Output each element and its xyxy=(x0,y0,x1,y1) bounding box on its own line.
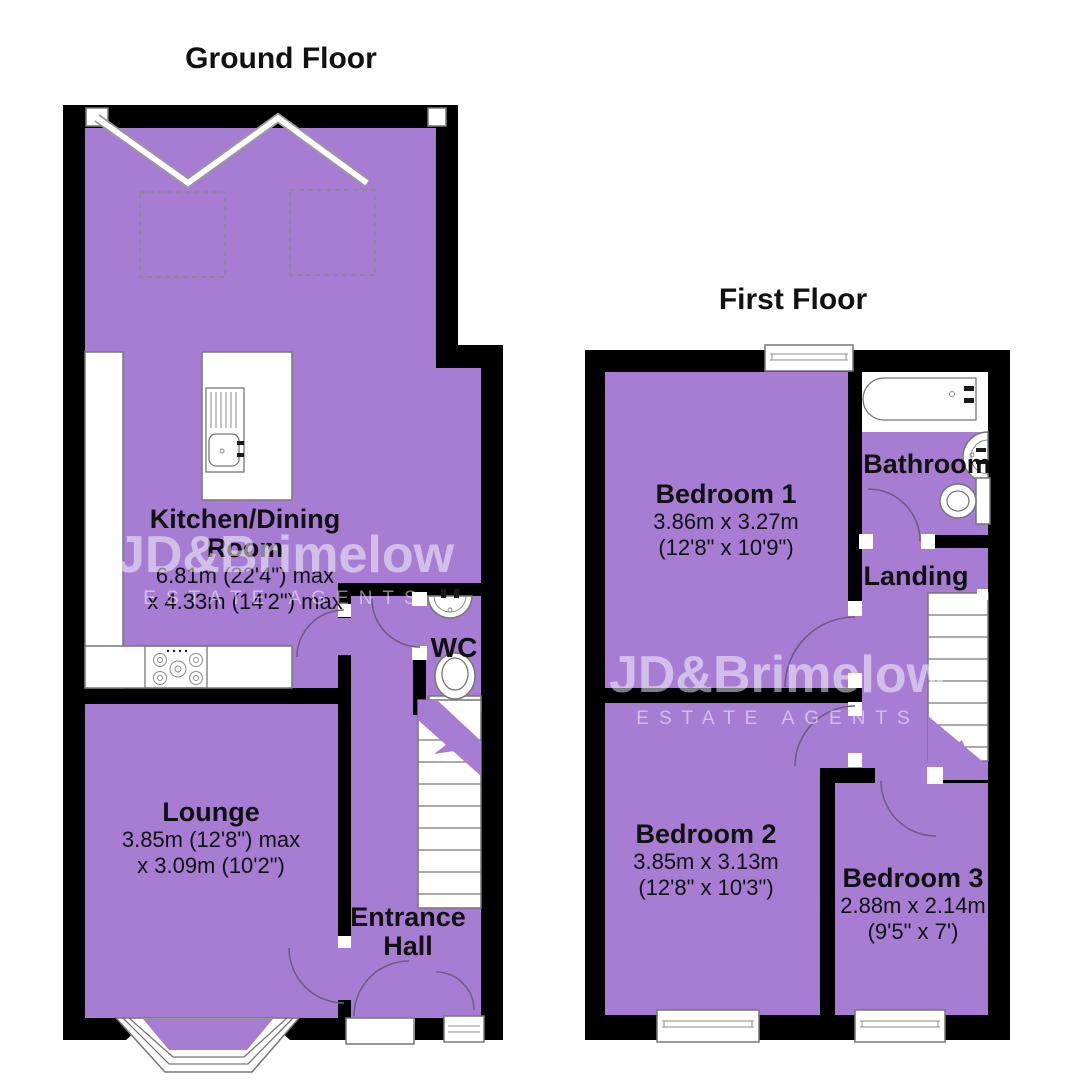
bedroom3-door-post xyxy=(927,767,943,784)
bedroom1-door-post-top xyxy=(848,601,862,616)
bedroom3-name: Bedroom 3 xyxy=(840,864,986,893)
bedroom1-dim-1: 3.86m x 3.27m xyxy=(653,509,799,535)
bedroom3-window xyxy=(855,1010,945,1042)
first-floor-title: First Floor xyxy=(719,283,867,317)
bedroom3-dim-2: (9'5" x 7') xyxy=(840,919,986,945)
ground-floor-title: Ground Floor xyxy=(185,42,377,76)
bedroom2-door-post-bottom xyxy=(848,753,862,767)
kitchen-name: Kitchen/Dining Room xyxy=(120,505,370,563)
bedroom3-dim-1: 2.88m x 2.14m xyxy=(840,893,986,919)
lounge-dim-1: 3.85m (12'8") max xyxy=(122,827,300,853)
lounge-name: Lounge xyxy=(122,798,300,827)
bedroom1-window xyxy=(765,345,853,371)
lounge-dim-2: x 3.09m (10'2") xyxy=(122,853,300,879)
kitchen-counter-left xyxy=(85,352,123,688)
porch-step xyxy=(444,1016,484,1042)
room-label-bedroom3: Bedroom 3 2.88m x 2.14m (9'5" x 7') xyxy=(840,864,986,945)
room-label-kitchen: Kitchen/Dining Room 6.81m (22'4") max x … xyxy=(120,505,370,615)
bedroom1-dim-2: (12'8" x 10'9") xyxy=(653,535,799,561)
wc-door-post-bottom xyxy=(412,646,427,660)
room-label-lounge: Lounge 3.85m (12'8") max x 3.09m (10'2") xyxy=(122,798,300,879)
bedroom1-door-post-bottom xyxy=(848,673,862,688)
front-door-threshold xyxy=(346,1018,414,1044)
kitchen-dim-1: 6.81m (22'4") max xyxy=(120,563,370,589)
ground-stairs xyxy=(418,700,481,908)
bedroom2-dim-1: 3.85m x 3.13m xyxy=(633,849,779,875)
window-square-right xyxy=(428,108,446,126)
bathroom-door-post-left xyxy=(859,534,873,549)
room-label-bathroom: Bathroom xyxy=(863,450,991,479)
entrance-hall-name: Entrance Hall xyxy=(333,903,483,961)
stairs-newel-post xyxy=(977,589,988,600)
room-label-bedroom1: Bedroom 1 3.86m x 3.27m (12'8" x 10'9") xyxy=(653,480,799,561)
bedroom2-window xyxy=(657,1010,759,1042)
bathroom-door-post-right xyxy=(921,534,935,549)
room-label-entrance-hall: Entrance Hall xyxy=(333,903,483,961)
floorplan-canvas: Ground Floor First Floor Kitchen/Dining … xyxy=(0,0,1080,1080)
bath-icon xyxy=(862,372,988,432)
kitchen-dim-2: x 4.33m (14'2") max xyxy=(120,589,370,615)
room-label-landing: Landing xyxy=(864,562,969,591)
room-label-wc: WC xyxy=(431,632,478,664)
bedroom2-dim-2: (12'8" x 10'3") xyxy=(633,875,779,901)
room-label-bedroom2: Bedroom 2 3.85m x 3.13m (12'8" x 10'3") xyxy=(633,820,779,901)
kitchen-counter-bottom xyxy=(85,646,292,688)
bedroom2-door-post-top xyxy=(848,702,862,716)
bedroom1-name: Bedroom 1 xyxy=(653,480,799,509)
first-stairs xyxy=(928,593,988,780)
wc-door-post-top xyxy=(412,592,427,606)
bedroom2-name: Bedroom 2 xyxy=(633,820,779,849)
